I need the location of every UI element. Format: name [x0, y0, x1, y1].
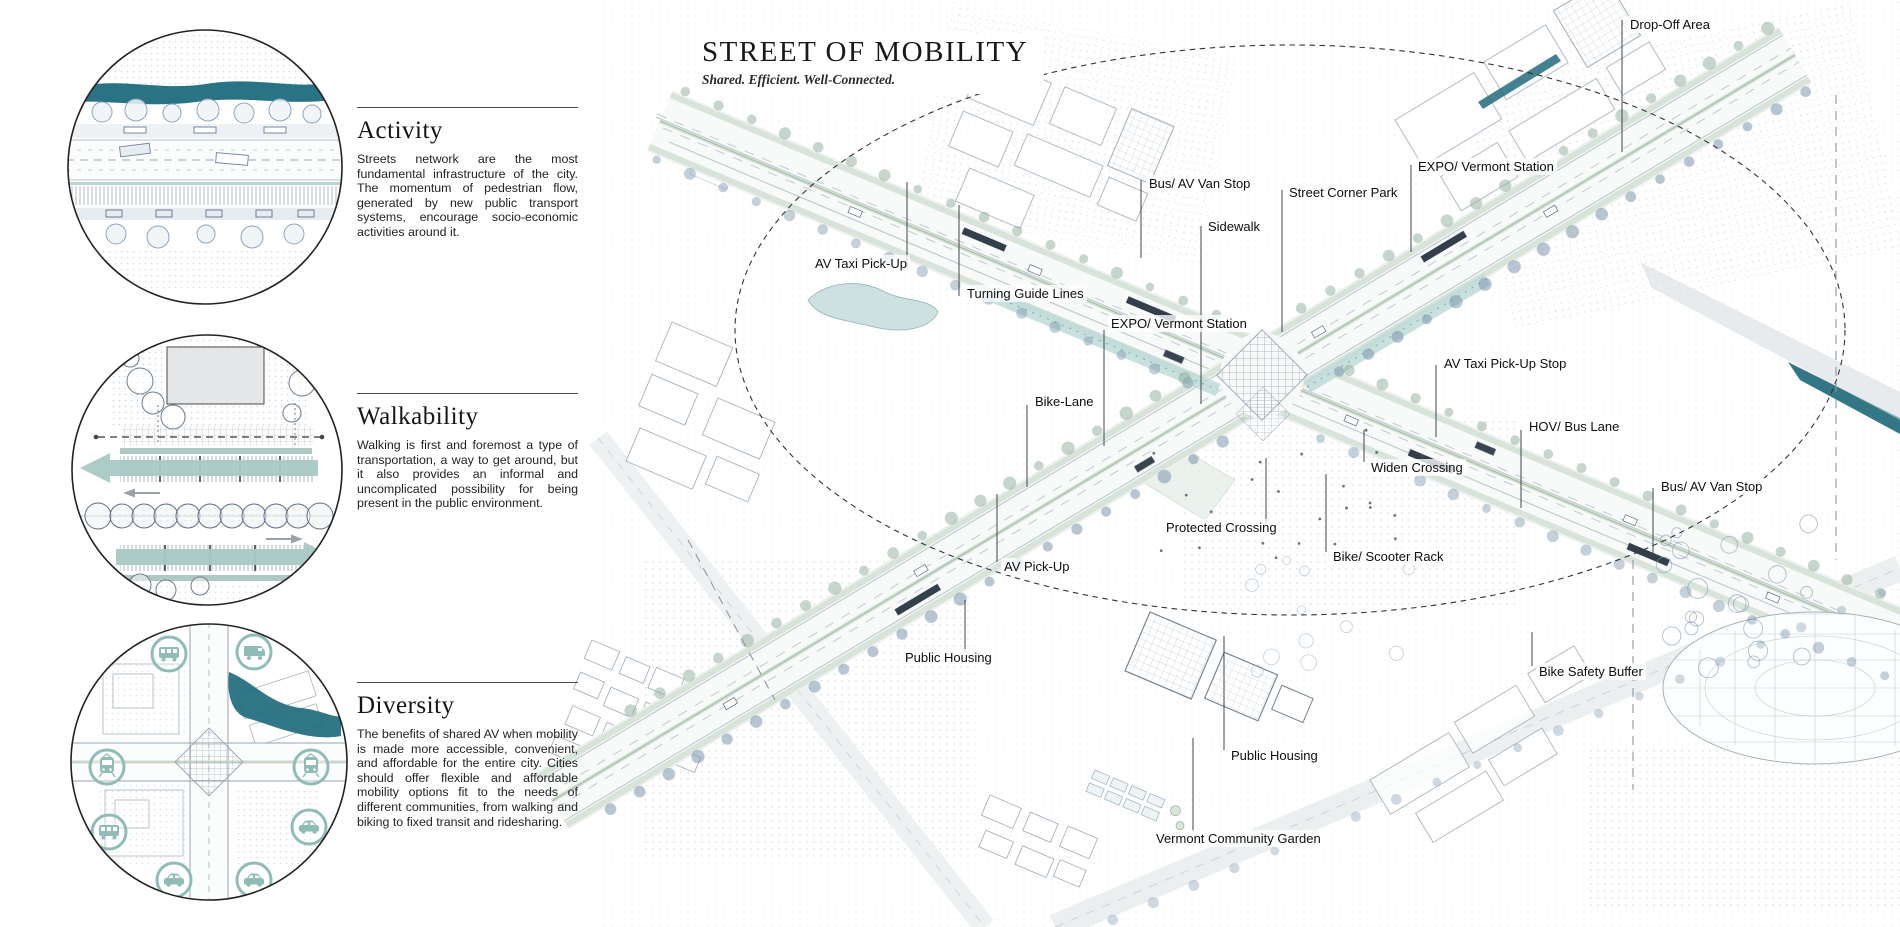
activity-diagram	[66, 28, 344, 306]
section-walkability: Walkability Walking is first and foremos…	[357, 393, 578, 511]
map-label-bus-av-van-stop-1: Bus/ AV Van Stop	[1146, 175, 1253, 192]
map-label-turning-guide-lines: Turning Guide Lines	[964, 285, 1087, 302]
map-label-av-taxi-pick-up: AV Taxi Pick-Up	[812, 255, 910, 272]
map-label-av-taxi-pick-up-stop: AV Taxi Pick-Up Stop	[1441, 355, 1569, 372]
section-diversity: Diversity The benefits of shared AV when…	[357, 682, 578, 829]
section-body: Walking is first and foremost a type of …	[357, 438, 578, 511]
map-label-expo-vermont-station-2: EXPO/ Vermont Station	[1108, 315, 1250, 332]
section-body: The benefits of shared AV when mobility …	[357, 727, 578, 829]
page-title: STREET OF MOBILITY	[702, 36, 1028, 69]
diversity-diagram	[69, 622, 349, 902]
section-body: Streets network are the most fundamental…	[357, 152, 578, 240]
walkability-diagram	[70, 333, 344, 607]
map-label-bike-lane: Bike-Lane	[1032, 393, 1097, 410]
map-label-av-pick-up: AV Pick-Up	[1001, 558, 1073, 575]
section-rule	[357, 107, 578, 108]
map-label-drop-off-area: Drop-Off Area	[1627, 16, 1713, 33]
section-rule	[357, 393, 578, 394]
section-rule	[357, 682, 578, 683]
page-subtitle: Shared. Efficient. Well-Connected.	[702, 72, 1028, 88]
map-label-bus-av-van-stop-2: Bus/ AV Van Stop	[1658, 478, 1765, 495]
map-label-bike-safety-buffer: Bike Safety Buffer	[1536, 663, 1646, 680]
map-label-street-corner-park: Street Corner Park	[1286, 184, 1400, 201]
map-label-widen-crossing: Widen Crossing	[1368, 459, 1466, 476]
section-title: Walkability	[357, 403, 578, 431]
section-title: Activity	[357, 117, 578, 145]
map-label-bike-scooter-rack: Bike/ Scooter Rack	[1330, 548, 1447, 565]
map-label-hov-bus-lane: HOV/ Bus Lane	[1526, 418, 1622, 435]
vehicle	[216, 153, 249, 166]
building-footprint	[167, 347, 264, 404]
street-tree-row	[85, 503, 333, 529]
map-label-public-housing-1: Public Housing	[902, 649, 995, 666]
map-label-vermont-community-garden: Vermont Community Garden	[1153, 830, 1324, 847]
title-block: STREET OF MOBILITY Shared. Efficient. We…	[700, 34, 1044, 94]
map-label-sidewalk: Sidewalk	[1205, 218, 1263, 235]
presentation-board: STREET OF MOBILITY Shared. Efficient. We…	[0, 0, 1900, 927]
section-title: Diversity	[357, 692, 578, 720]
map-label-protected-crossing: Protected Crossing	[1163, 519, 1280, 536]
map-label-public-housing-2: Public Housing	[1228, 747, 1321, 764]
map-label-expo-vermont-station-1: EXPO/ Vermont Station	[1415, 158, 1557, 175]
section-activity: Activity Streets network are the most fu…	[357, 107, 578, 240]
